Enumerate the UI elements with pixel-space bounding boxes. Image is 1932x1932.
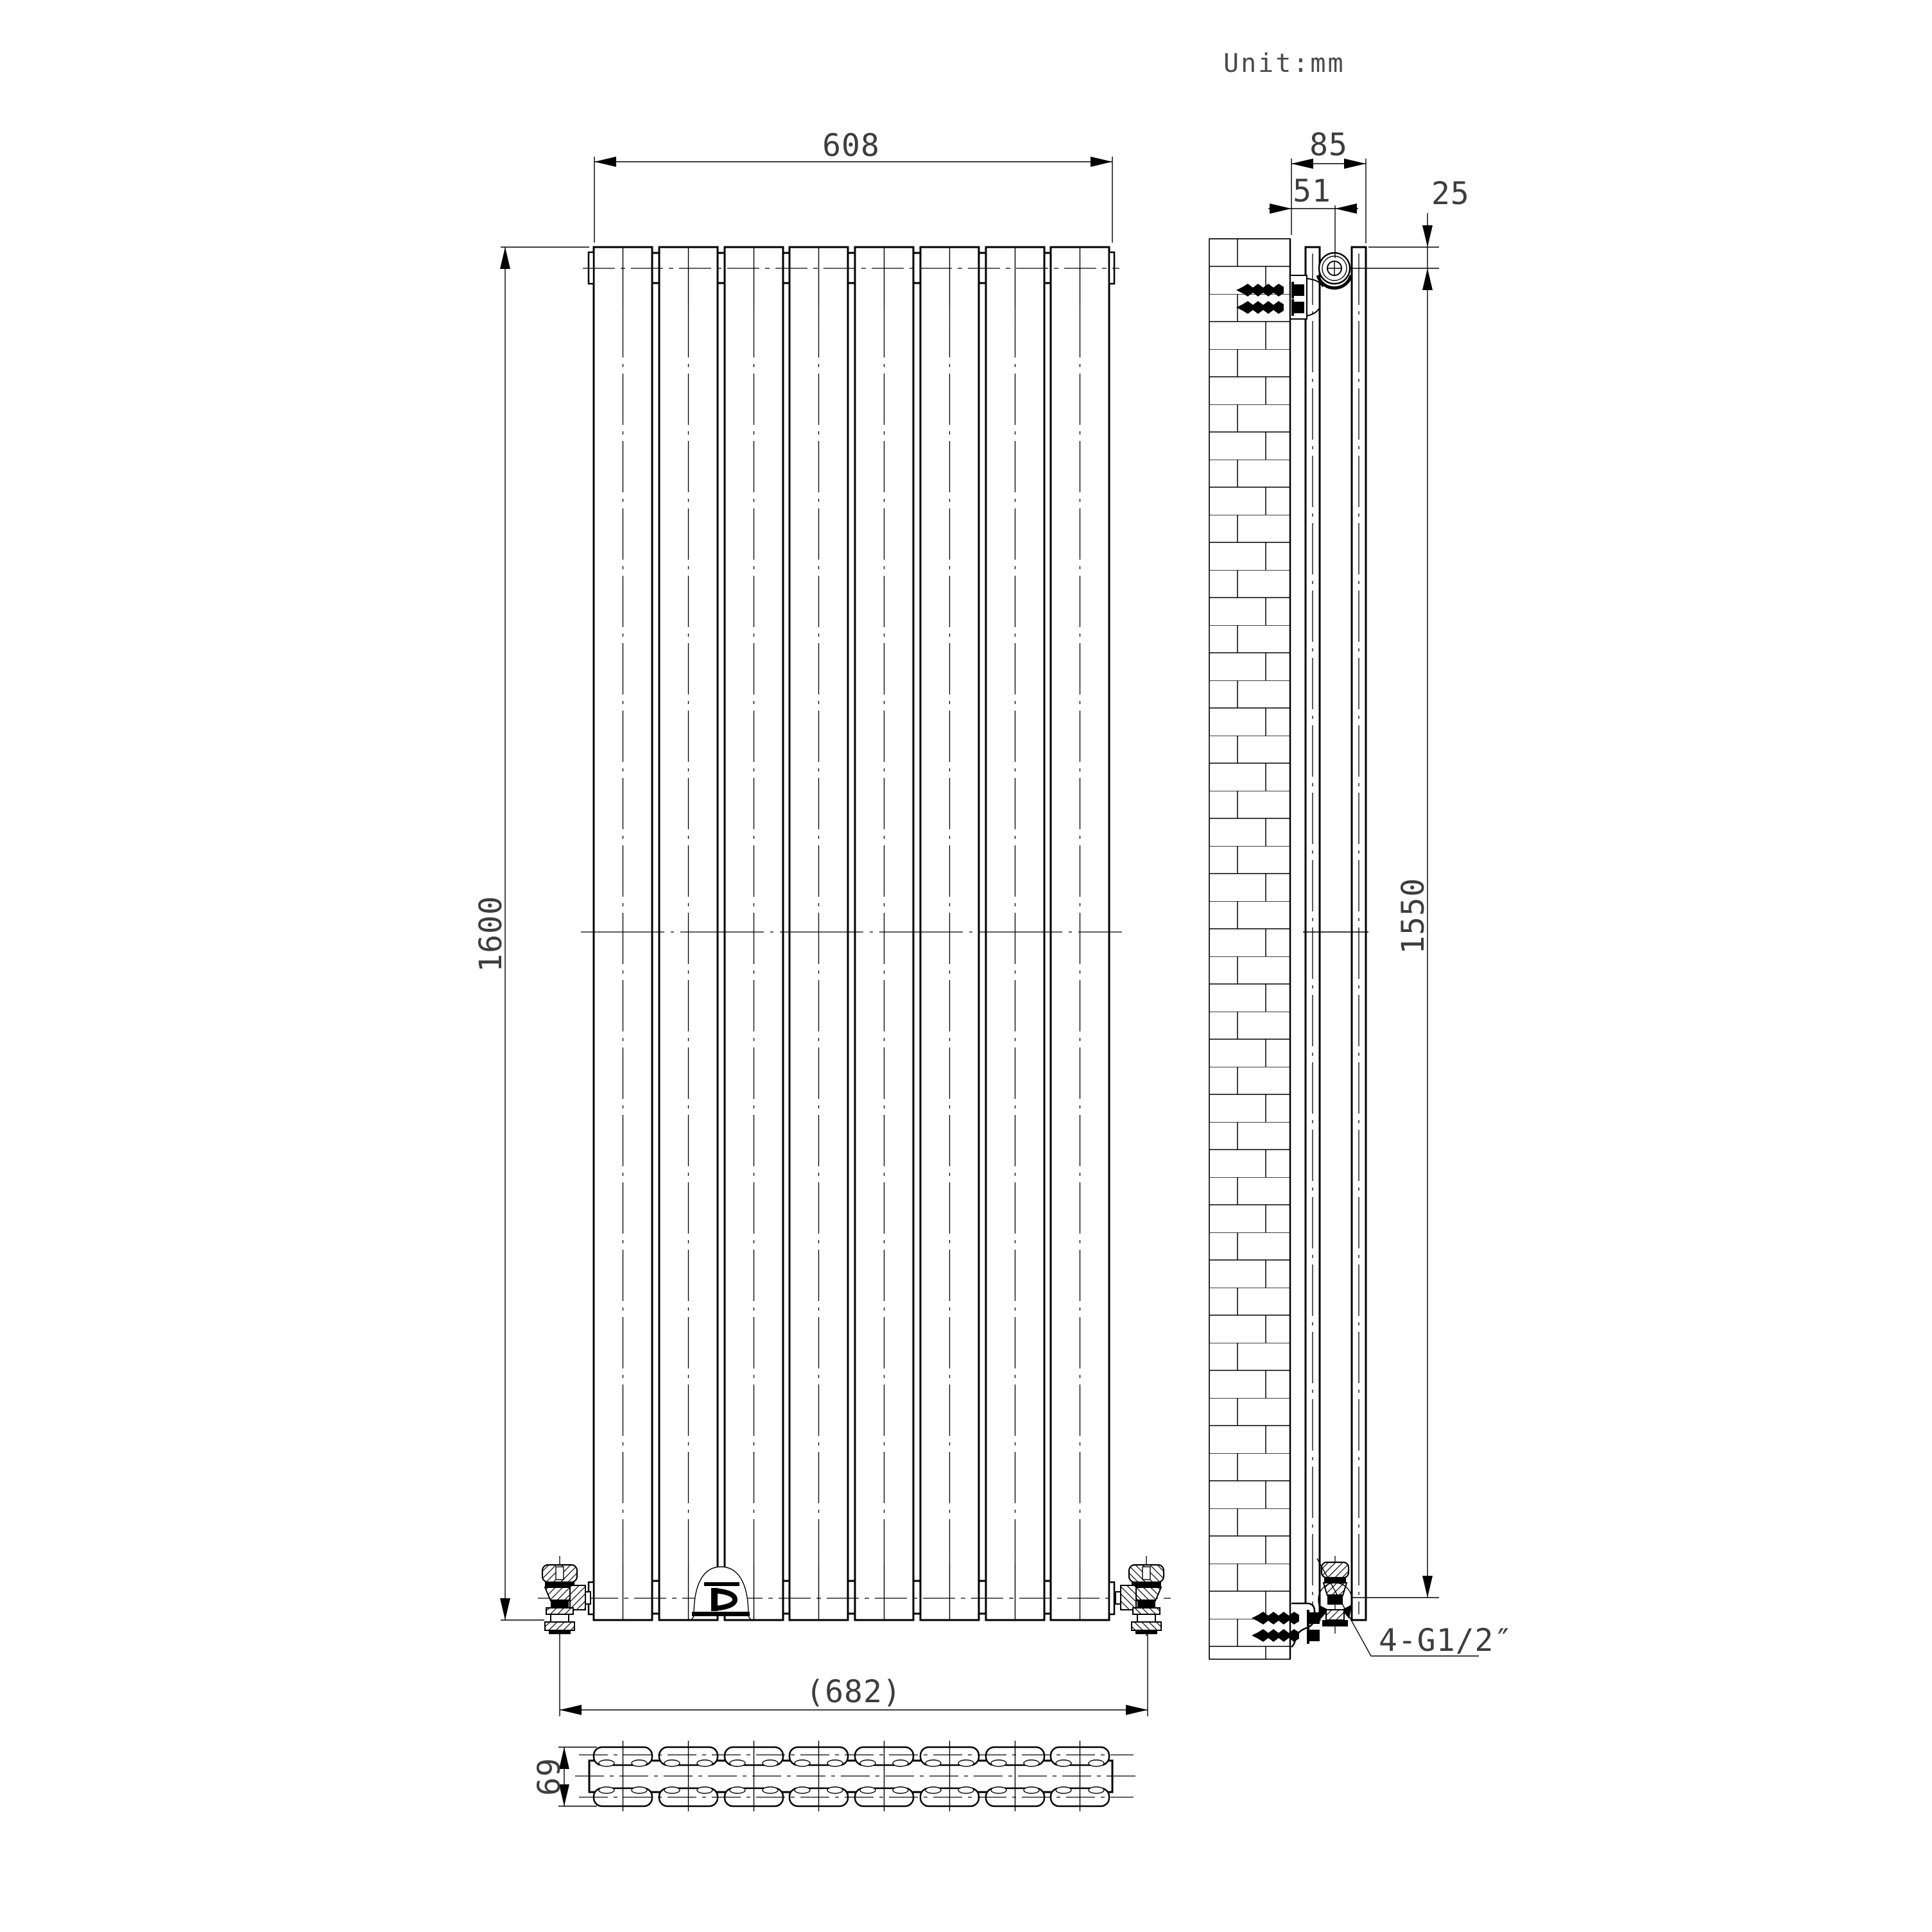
unit-note: Unit:mm — [1223, 49, 1345, 78]
dim-width-top-label: 608 — [822, 128, 880, 164]
dim-depth-from-wall-label: 85 — [1309, 127, 1348, 163]
panel-8 — [1051, 247, 1109, 1620]
dim-valve-centers-label: (682) — [806, 1674, 902, 1710]
dim-height-left-label: 1600 — [473, 895, 509, 972]
panel-3 — [725, 247, 783, 1620]
dim-top-to-bracket-label: 25 — [1431, 176, 1470, 212]
dim-plan-depth-label: 69 — [531, 1757, 567, 1796]
radiator-technical-drawing-page: 608 1600 (682) — [0, 0, 1932, 1932]
thread-callout-label: 4-G1/2″ — [1379, 1623, 1513, 1659]
panel-5 — [855, 247, 913, 1620]
dim-bracket-span-label: 1550 — [1395, 877, 1431, 954]
right-bottom-tab — [1109, 1582, 1114, 1614]
panel-6 — [920, 247, 979, 1620]
technical-drawing: 608 1600 (682) — [0, 0, 1932, 1932]
panel-1 — [594, 247, 652, 1620]
wall-section — [1209, 239, 1290, 1659]
panel-2 — [659, 247, 718, 1620]
panel-7 — [986, 247, 1044, 1620]
dim-bracket-from-wall-label: 51 — [1293, 173, 1331, 209]
panel-4 — [789, 247, 848, 1620]
